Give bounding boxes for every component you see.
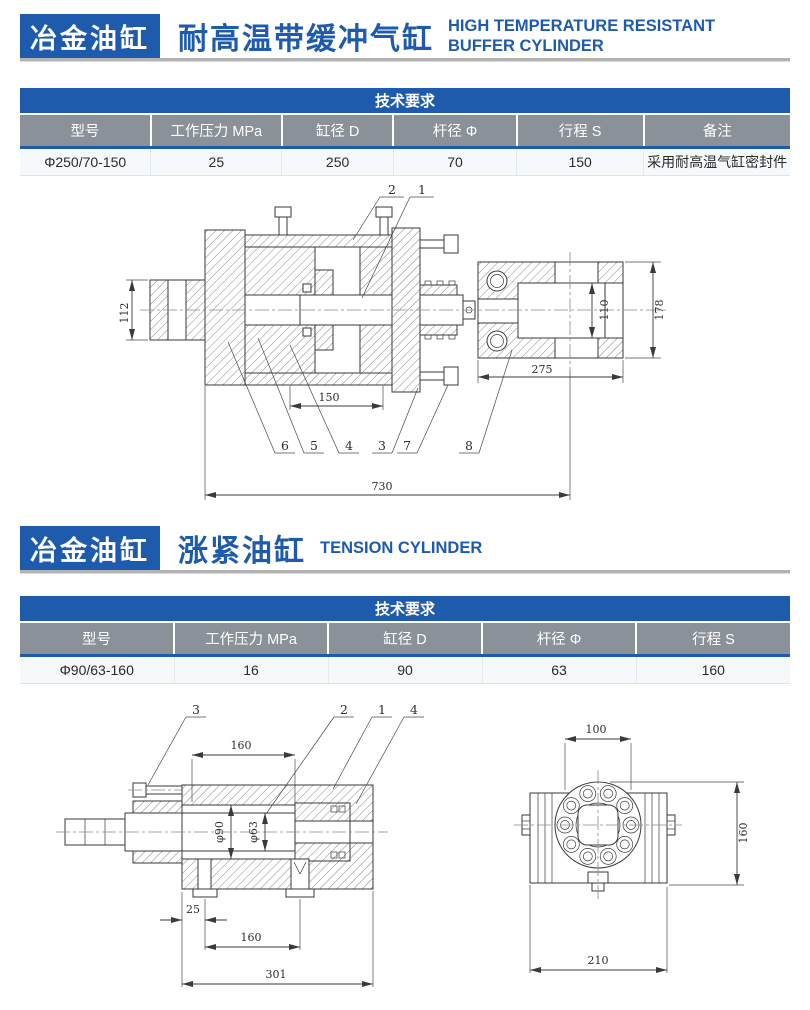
- col-model-2: 型号: [20, 622, 174, 656]
- callout-5: 5: [310, 438, 318, 453]
- table1-header-row: 型号 工作压力 MPa 缸径 D 杆径 Φ 行程 S 备注: [20, 114, 790, 148]
- dim-bore: φ90: [213, 821, 226, 843]
- end-view-body: [514, 770, 682, 900]
- cell-model: Φ250/70-150: [20, 148, 151, 176]
- callout-1: 1: [418, 182, 426, 197]
- brand-text-2: 冶金油缸: [30, 529, 150, 568]
- dim-25: 25: [186, 903, 200, 916]
- table2-title: 技术要求: [20, 596, 790, 622]
- section1-header: 冶金油缸 耐高温带缓冲气缸 HIGH TEMPERATURE RESISTANT…: [20, 14, 790, 58]
- dim-210: 210: [588, 954, 609, 967]
- cell-bore: 250: [282, 148, 394, 176]
- callout-3: 3: [378, 438, 386, 453]
- table2-data-row: Φ90/63-160 16 90 63 160: [20, 656, 790, 684]
- table2-header-row: 型号 工作压力 MPa 缸径 D 杆径 Φ 行程 S: [20, 622, 790, 656]
- callout-8: 8: [465, 438, 473, 453]
- table1-data-row: Φ250/70-150 25 250 70 150 采用耐高温气缸密封件: [20, 148, 790, 176]
- dim-100: 100: [586, 723, 607, 736]
- tension-cylinder-end-view: 100 160 210: [500, 702, 800, 1007]
- section1-title-zh: 耐高温带缓冲气缸: [178, 14, 434, 58]
- table1-title: 技术要求: [20, 88, 790, 114]
- dim-301: 301: [266, 968, 287, 981]
- dim-178: 178: [653, 300, 666, 321]
- col-rod-2: 杆径 Φ: [482, 622, 636, 656]
- cell-pressure: 25: [151, 148, 282, 176]
- col-rod: 杆径 Φ: [393, 114, 516, 148]
- callout2-4: 4: [410, 702, 418, 717]
- dim-mid-160: 160: [241, 931, 262, 944]
- col-bore-2: 缸径 D: [328, 622, 482, 656]
- section2-title-en: TENSION CYLINDER: [320, 538, 482, 558]
- dim-112: 112: [118, 303, 131, 324]
- section2-title-zh: 涨紧油缸: [178, 526, 306, 570]
- callout-7: 7: [403, 438, 411, 453]
- spec-table-1: 技术要求 型号 工作压力 MPa 缸径 D 杆径 Φ 行程 S 备注 Φ250/…: [20, 88, 790, 176]
- callout-6: 6: [281, 438, 289, 453]
- col-stroke-2: 行程 S: [636, 622, 790, 656]
- cell-rod-2: 63: [482, 656, 636, 684]
- brand-text: 冶金油缸: [30, 17, 150, 56]
- cell-stroke-2: 160: [636, 656, 790, 684]
- table2-title-row: 技术要求: [20, 596, 790, 622]
- dim-150: 150: [319, 391, 340, 404]
- col-stroke: 行程 S: [517, 114, 644, 148]
- dim-top-160: 160: [231, 739, 252, 752]
- col-remark: 备注: [644, 114, 790, 148]
- cell-stroke: 150: [517, 148, 644, 176]
- callout2-1: 1: [378, 702, 386, 717]
- spec-table-2: 技术要求 型号 工作压力 MPa 缸径 D 杆径 Φ 行程 S Φ90/63-1…: [20, 596, 790, 684]
- section1-title-en: HIGH TEMPERATURE RESISTANT BUFFER CYLIND…: [448, 16, 783, 56]
- brand-badge-2: 冶金油缸: [20, 526, 160, 570]
- tension-cylinder-section-drawing: 160 φ90 φ63 25 160 301 3 2 1 4: [48, 702, 468, 1007]
- col-pressure: 工作压力 MPa: [151, 114, 282, 148]
- table1-title-row: 技术要求: [20, 88, 790, 114]
- cell-pressure-2: 16: [174, 656, 328, 684]
- col-pressure-2: 工作压力 MPa: [174, 622, 328, 656]
- buffer-cylinder-section-drawing: 112 110 178 275 150 730 2 1 6 5 4 3 7: [20, 180, 790, 512]
- header-rule-1: [20, 58, 790, 61]
- header-rule-2: [20, 570, 790, 573]
- callout-4: 4: [345, 438, 353, 453]
- cell-remark: 采用耐高温气缸密封件: [644, 148, 790, 176]
- callout2-3: 3: [192, 702, 200, 717]
- brand-badge: 冶金油缸: [20, 14, 160, 58]
- col-bore: 缸径 D: [282, 114, 394, 148]
- dim-rod: φ63: [247, 821, 260, 843]
- dim-side-160: 160: [737, 823, 750, 844]
- callout-2: 2: [388, 182, 396, 197]
- cell-rod: 70: [393, 148, 516, 176]
- col-model: 型号: [20, 114, 151, 148]
- dim-275: 275: [532, 363, 553, 376]
- dim-730: 730: [372, 480, 393, 493]
- section2-header: 冶金油缸 涨紧油缸 TENSION CYLINDER: [20, 526, 790, 570]
- cell-bore-2: 90: [328, 656, 482, 684]
- cell-model-2: Φ90/63-160: [20, 656, 174, 684]
- dim-110: 110: [598, 300, 611, 321]
- callout2-2: 2: [340, 702, 348, 717]
